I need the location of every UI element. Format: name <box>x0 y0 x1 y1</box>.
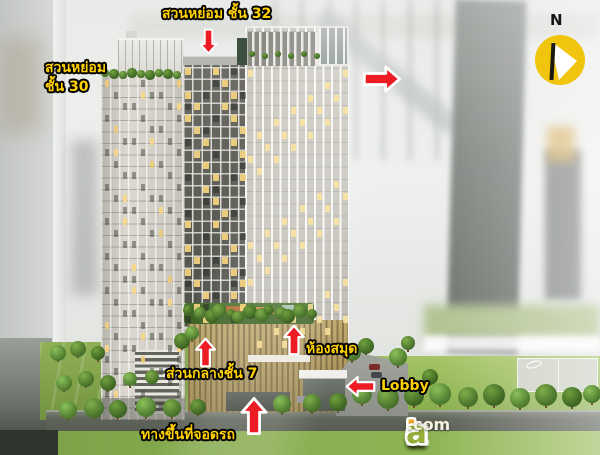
window-cell <box>141 92 145 99</box>
window-cell <box>114 333 118 340</box>
window-cell <box>123 138 127 145</box>
window-cell <box>213 257 219 264</box>
window-cell <box>194 127 200 134</box>
annotation-garden-floor-30: สวนหย่อม ชั้น 30 <box>8 60 82 79</box>
lawn-front-strip <box>0 431 600 455</box>
window-cell <box>213 198 219 205</box>
window-cell <box>132 276 136 283</box>
window-cell <box>274 156 279 163</box>
arrow-left-icon <box>346 376 375 397</box>
model-tree <box>458 387 478 407</box>
window-cell <box>325 328 330 335</box>
window-cell <box>168 345 172 352</box>
arrow-right-icon <box>82 66 600 92</box>
window-cell <box>240 92 246 99</box>
window-cell <box>194 280 200 287</box>
window-cell <box>177 184 181 191</box>
library-label: ห้องสมุด <box>306 341 357 357</box>
window-cell <box>222 210 228 217</box>
model-tree <box>56 375 72 391</box>
window-cell <box>203 198 209 205</box>
window-cell <box>317 193 322 200</box>
rooftop-glass-corner <box>317 26 349 66</box>
model-tree <box>358 338 374 354</box>
window-cell <box>231 210 237 217</box>
window-cell <box>159 126 163 133</box>
model-tree <box>50 345 66 361</box>
window-cell <box>334 95 339 102</box>
parking-ramp-label: ทางขึ้นที่จอดรถ <box>141 427 235 443</box>
facade-teal-glass <box>237 38 247 65</box>
window-cell <box>185 221 191 228</box>
window-cell <box>194 103 200 110</box>
window-cell <box>274 328 279 335</box>
window-cell <box>231 280 237 287</box>
window-cell <box>291 230 296 237</box>
window-cell <box>222 257 228 264</box>
arrow-up-icon <box>241 396 267 436</box>
window-cell <box>343 316 348 323</box>
window-cell <box>168 172 172 179</box>
window-cell <box>123 310 127 317</box>
window-cell <box>334 304 339 311</box>
window-cell <box>185 174 191 181</box>
window-cell <box>194 151 200 158</box>
window-cell <box>114 230 118 237</box>
window-cell <box>177 103 181 110</box>
window-cell <box>114 126 118 133</box>
window-cell <box>141 253 145 260</box>
window-cell <box>141 115 145 122</box>
window-cell <box>240 127 246 134</box>
window-cell <box>141 184 145 191</box>
window-cell <box>150 161 154 168</box>
window-cell <box>317 230 322 237</box>
arrow-down-icon <box>197 29 220 54</box>
court-marking <box>525 359 542 370</box>
rooftop-garden-colonnade <box>245 32 319 66</box>
window-cell <box>334 181 339 188</box>
window-cell <box>265 230 270 237</box>
window-cell <box>132 345 136 352</box>
model-tree <box>562 387 582 407</box>
window-cell <box>203 233 209 240</box>
model-tree <box>307 309 317 319</box>
window-cell <box>185 316 191 323</box>
window-cell <box>213 115 219 122</box>
window-cell <box>114 161 118 168</box>
window-cell <box>203 127 209 134</box>
window-cell <box>300 242 305 249</box>
window-cell <box>325 205 330 212</box>
window-cell <box>308 95 313 102</box>
window-cell <box>141 149 145 156</box>
display-case-glass-edge <box>53 0 66 362</box>
window-cell <box>177 391 181 398</box>
window-cell <box>248 156 253 163</box>
window-cell <box>185 280 191 287</box>
window-cell <box>231 245 237 252</box>
window-cell <box>240 233 246 240</box>
window-cell <box>282 218 287 225</box>
window-cell <box>114 264 118 271</box>
window-cell <box>159 264 163 271</box>
window-cell <box>203 292 209 299</box>
window-cell <box>150 264 154 271</box>
window-cell <box>334 218 339 225</box>
window-cell <box>213 151 219 158</box>
window-cell <box>132 287 136 294</box>
model-tree <box>535 384 557 406</box>
window-cell <box>240 151 246 158</box>
window-cell <box>123 195 127 202</box>
window-cell <box>168 103 172 110</box>
window-cell <box>177 218 181 225</box>
window-cell <box>141 333 145 340</box>
window-cell <box>168 241 172 248</box>
background-reflection-smudge <box>0 38 42 133</box>
model-tree <box>483 384 505 406</box>
window-cell <box>248 242 253 249</box>
model-tree <box>183 305 193 315</box>
window-cell <box>257 168 262 175</box>
window-cell <box>105 184 109 191</box>
background-dark-reflection <box>71 140 98 295</box>
lobby-canopy <box>299 370 347 379</box>
window-cell <box>132 172 136 179</box>
lobby-label: Lobby <box>381 378 429 394</box>
podium-white-band <box>248 355 310 362</box>
common-area-floor-7-label: ส่วนกลางชั้น 7 <box>166 366 257 382</box>
window-cell <box>185 269 191 276</box>
window-cell <box>168 299 172 306</box>
window-cell <box>150 138 154 145</box>
window-cell <box>185 103 191 110</box>
window-cell <box>291 144 296 151</box>
model-tree <box>84 398 104 418</box>
window-cell <box>213 174 219 181</box>
window-cell <box>343 107 348 114</box>
display-case-reflection <box>424 336 600 351</box>
window-cell <box>213 186 219 193</box>
window-cell <box>240 198 246 205</box>
window-cell <box>291 107 296 114</box>
window-cell <box>159 207 163 214</box>
window-cell <box>274 119 279 126</box>
window-cell <box>265 267 270 274</box>
window-cell <box>105 253 109 260</box>
window-cell <box>159 161 163 168</box>
window-cell <box>240 162 246 169</box>
window-cell <box>123 103 127 110</box>
compass-icon <box>534 34 586 86</box>
window-cell <box>213 292 219 299</box>
model-tree <box>232 311 244 323</box>
window-cell <box>203 92 209 99</box>
window-cell <box>177 149 181 156</box>
court-line <box>558 359 560 391</box>
window-cell <box>114 299 118 306</box>
model-tree <box>583 385 600 403</box>
window-cell <box>123 218 127 225</box>
model-tree <box>510 388 530 408</box>
arrow-up-icon <box>283 325 305 355</box>
window-cell <box>231 269 237 276</box>
window-cell <box>150 230 154 237</box>
model-tree <box>429 383 451 405</box>
window-cell <box>132 138 136 145</box>
window-cell <box>141 218 145 225</box>
window-cell <box>222 233 228 240</box>
window-cell <box>123 172 127 179</box>
window-cell <box>150 126 154 133</box>
window-cell <box>300 119 305 126</box>
window-cell <box>159 299 163 306</box>
model-tree <box>190 399 206 415</box>
window-cell <box>132 310 136 317</box>
model-tree <box>136 397 156 417</box>
window-cell <box>343 193 348 200</box>
window-cell <box>194 257 200 264</box>
window-cell <box>203 186 209 193</box>
window-cell <box>325 119 330 126</box>
window-cell <box>248 279 253 286</box>
window-cell <box>132 103 136 110</box>
model-car <box>369 364 380 370</box>
window-cell <box>105 287 109 294</box>
window-cell <box>177 356 181 363</box>
window-cell <box>114 149 118 156</box>
window-cell <box>132 207 136 214</box>
window-cell <box>282 255 287 262</box>
window-cell <box>105 149 109 156</box>
window-cell <box>150 299 154 306</box>
window-cell <box>240 174 246 181</box>
window-cell <box>123 241 127 248</box>
window-cell <box>150 92 154 99</box>
model-base-corner <box>0 430 58 455</box>
window-cell <box>114 391 118 398</box>
window-cell <box>177 115 181 122</box>
window-cell <box>185 210 191 217</box>
window-cell <box>203 162 209 169</box>
window-cell <box>159 92 163 99</box>
model-tree <box>194 307 206 319</box>
window-cell <box>203 269 209 276</box>
model-tree <box>78 371 94 387</box>
window-cell <box>168 138 172 145</box>
window-cell <box>105 115 109 122</box>
window-cell <box>231 115 237 122</box>
window-cell <box>231 103 237 110</box>
window-cell <box>150 195 154 202</box>
window-cell <box>240 269 246 276</box>
window-cell <box>105 218 109 225</box>
window-cell <box>177 253 181 260</box>
window-cell <box>168 207 172 214</box>
model-tree <box>264 305 274 315</box>
window-cell <box>168 276 172 283</box>
window-cell <box>274 242 279 249</box>
window-cell <box>141 287 145 294</box>
window-cell <box>265 144 270 151</box>
window-cell <box>325 291 330 298</box>
window-cell <box>185 139 191 146</box>
window-cell <box>177 287 181 294</box>
model-tree <box>70 341 86 357</box>
window-cell <box>159 368 163 375</box>
window-cell <box>141 322 145 329</box>
window-cell <box>123 345 127 352</box>
model-photo-canvas: สวนหย่อม ชั้น 32 สวนหย่อม ชั้น 30 ส่วนกล… <box>0 0 600 455</box>
window-cell <box>159 333 163 340</box>
background-distant-lawn <box>424 305 600 339</box>
window-cell <box>213 221 219 228</box>
model-tree <box>100 375 116 391</box>
model-tree <box>401 336 415 350</box>
window-cell <box>343 279 348 286</box>
window-cell <box>300 205 305 212</box>
window-cell <box>257 255 262 262</box>
window-cell <box>185 92 191 99</box>
window-cell <box>159 230 163 237</box>
window-cell <box>114 195 118 202</box>
window-cell <box>185 115 191 122</box>
background-distant-model-top <box>547 126 575 162</box>
window-cell <box>105 345 109 352</box>
window-cell <box>114 92 118 99</box>
window-cell <box>185 245 191 252</box>
window-cell <box>132 241 136 248</box>
window-cell <box>231 92 237 99</box>
window-cell <box>123 207 127 214</box>
window-cell <box>105 356 109 363</box>
window-cell <box>240 280 246 287</box>
background-pillar <box>446 0 526 354</box>
window-cell <box>123 276 127 283</box>
window-cell <box>141 356 145 363</box>
window-cell <box>105 322 109 329</box>
window-cell <box>222 103 228 110</box>
compass-north-label: N <box>550 11 563 29</box>
window-cell <box>231 139 237 146</box>
window-cell <box>168 310 172 317</box>
window-cell <box>317 107 322 114</box>
window-cell <box>317 316 322 323</box>
window-cell <box>203 139 209 146</box>
window-cell <box>257 132 262 139</box>
window-cell <box>282 132 287 139</box>
window-cell <box>308 132 313 139</box>
window-cell <box>231 292 237 299</box>
window-cell <box>159 195 163 202</box>
watermark-suffix: .com <box>407 415 450 434</box>
window-cell <box>231 174 237 181</box>
window-cell <box>132 264 136 271</box>
window-cell <box>114 368 118 375</box>
garden-floor-32-label: สวนหย่อม ชั้น 32 <box>162 6 271 22</box>
window-cell <box>257 341 262 348</box>
arrow-up-icon <box>195 338 216 367</box>
background-distant-model <box>545 150 581 300</box>
window-cell <box>177 322 181 329</box>
window-cell <box>308 218 313 225</box>
window-cell <box>150 333 154 340</box>
